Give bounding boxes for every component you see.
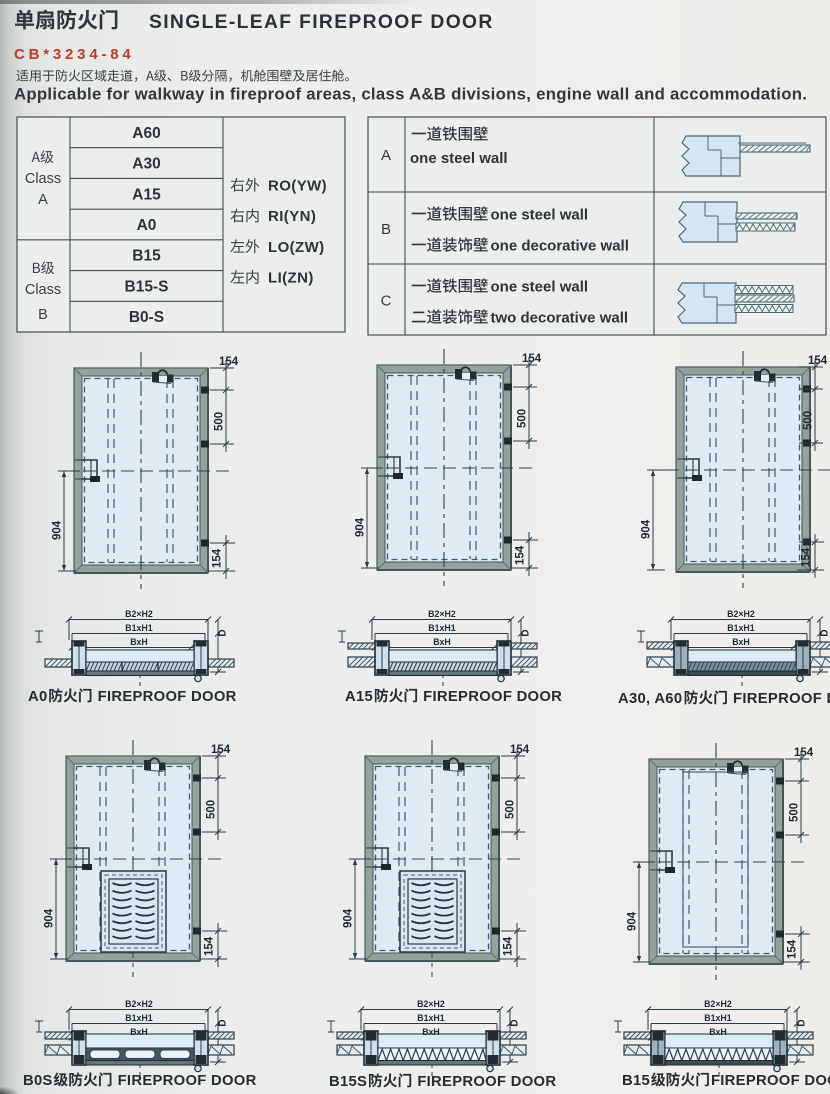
- svg-text:B15-S: B15-S: [125, 278, 169, 295]
- svg-text:B1xH1: B1xH1: [428, 623, 455, 633]
- svg-text:A30, A60: A30, A60: [618, 691, 682, 707]
- svg-text:B2×H2: B2×H2: [704, 999, 732, 1009]
- svg-text:B: B: [381, 221, 391, 238]
- svg-text:A: A: [381, 147, 391, 164]
- svg-text:BxH: BxH: [433, 637, 451, 647]
- svg-text:A0: A0: [137, 217, 157, 234]
- svg-text:BxH: BxH: [422, 1027, 440, 1037]
- svg-text:BxH: BxH: [130, 1027, 148, 1037]
- svg-text:C: C: [381, 293, 392, 310]
- svg-text:Applicable for walkway in fire: Applicable for walkway in fireproof area…: [14, 85, 807, 104]
- svg-text:D: D: [510, 1019, 521, 1026]
- svg-text:LI(ZN): LI(ZN): [268, 270, 314, 287]
- svg-text:B2×H2: B2×H2: [417, 999, 445, 1009]
- svg-text:B15: B15: [622, 1073, 650, 1089]
- svg-text:B: B: [38, 307, 48, 323]
- svg-text:one decorative wall: one decorative wall: [491, 238, 629, 255]
- svg-text:B2×H2: B2×H2: [428, 609, 456, 619]
- svg-text:D: D: [797, 1019, 808, 1026]
- svg-text:D: D: [218, 1019, 229, 1026]
- svg-text:one steel wall: one steel wall: [491, 207, 589, 224]
- svg-text:D: D: [521, 629, 532, 636]
- svg-text:B1xH1: B1xH1: [704, 1013, 731, 1023]
- svg-text:A15: A15: [345, 689, 373, 705]
- svg-text:SINGLE-LEAF FIREPROOF DOOR: SINGLE-LEAF FIREPROOF DOOR: [149, 12, 494, 33]
- svg-text:B1xH1: B1xH1: [125, 623, 152, 633]
- svg-text:Class: Class: [25, 171, 61, 187]
- svg-text:D: D: [218, 629, 229, 636]
- svg-text:FIREPROOF DOOR: FIREPROOF DOOR: [98, 689, 237, 705]
- svg-text:A30: A30: [132, 156, 160, 173]
- svg-text:B0-S: B0-S: [129, 309, 164, 326]
- svg-text:A0: A0: [28, 689, 48, 705]
- svg-text:Class: Class: [25, 282, 61, 298]
- svg-text:FIREPROOF DOO: FIREPROOF DOO: [711, 1073, 830, 1089]
- svg-text:A: A: [38, 192, 48, 208]
- svg-text:B1xH1: B1xH1: [125, 1013, 152, 1023]
- svg-text:B2×H2: B2×H2: [125, 999, 153, 1009]
- svg-text:B1xH1: B1xH1: [417, 1013, 444, 1023]
- svg-text:B0S: B0S: [23, 1073, 53, 1089]
- svg-text:FIREPROOF DOOR: FIREPROOF DOOR: [118, 1073, 257, 1089]
- svg-text:FIREPROOF D: FIREPROOF D: [733, 691, 830, 707]
- svg-text:D: D: [820, 629, 830, 636]
- svg-text:B1xH1: B1xH1: [727, 623, 754, 633]
- svg-text:FIREPROOF DOOR: FIREPROOF DOOR: [417, 1074, 556, 1090]
- svg-text:FIREPROOF DOOR: FIREPROOF DOOR: [423, 689, 562, 705]
- svg-text:one steel wall: one steel wall: [491, 279, 589, 296]
- svg-text:two decorative wall: two decorative wall: [491, 310, 629, 327]
- svg-text:B15S: B15S: [329, 1074, 367, 1090]
- svg-text:one steel wall: one steel wall: [410, 150, 508, 167]
- svg-text:BxH: BxH: [130, 637, 148, 647]
- svg-text:A15: A15: [132, 186, 161, 203]
- svg-text:CB*3234-84: CB*3234-84: [14, 46, 135, 63]
- svg-text:A60: A60: [132, 125, 160, 142]
- svg-text:LO(ZW): LO(ZW): [268, 239, 325, 256]
- svg-text:RI(YN): RI(YN): [268, 208, 316, 225]
- svg-text:RO(YW): RO(YW): [268, 178, 327, 195]
- svg-text:B2×H2: B2×H2: [125, 609, 153, 619]
- svg-text:BxH: BxH: [709, 1027, 727, 1037]
- svg-text:B15: B15: [132, 248, 161, 265]
- svg-text:B2×H2: B2×H2: [727, 609, 755, 619]
- svg-text:BxH: BxH: [732, 637, 750, 647]
